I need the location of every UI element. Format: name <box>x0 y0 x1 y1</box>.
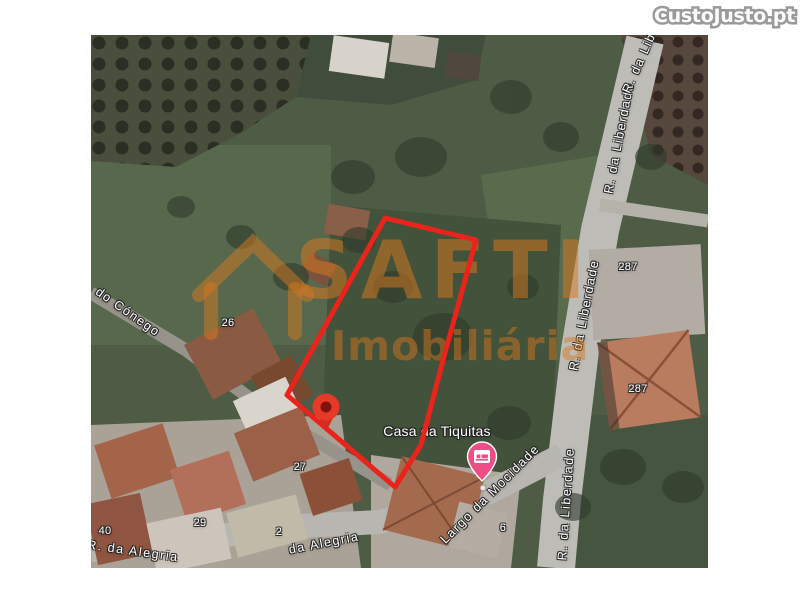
plot-outline-polygon <box>91 35 708 568</box>
listing-page: { "header": { "logo_text": "CustoJusto.p… <box>0 0 800 600</box>
custojusto-logo-text: CustoJusto.pt <box>654 5 795 27</box>
satellite-map-image[interactable]: do Cónego R. da Liberdade R. da Lib R. d… <box>91 35 708 568</box>
lodging-bed-pin-icon <box>466 441 498 493</box>
plot-pin-icon <box>307 390 345 436</box>
